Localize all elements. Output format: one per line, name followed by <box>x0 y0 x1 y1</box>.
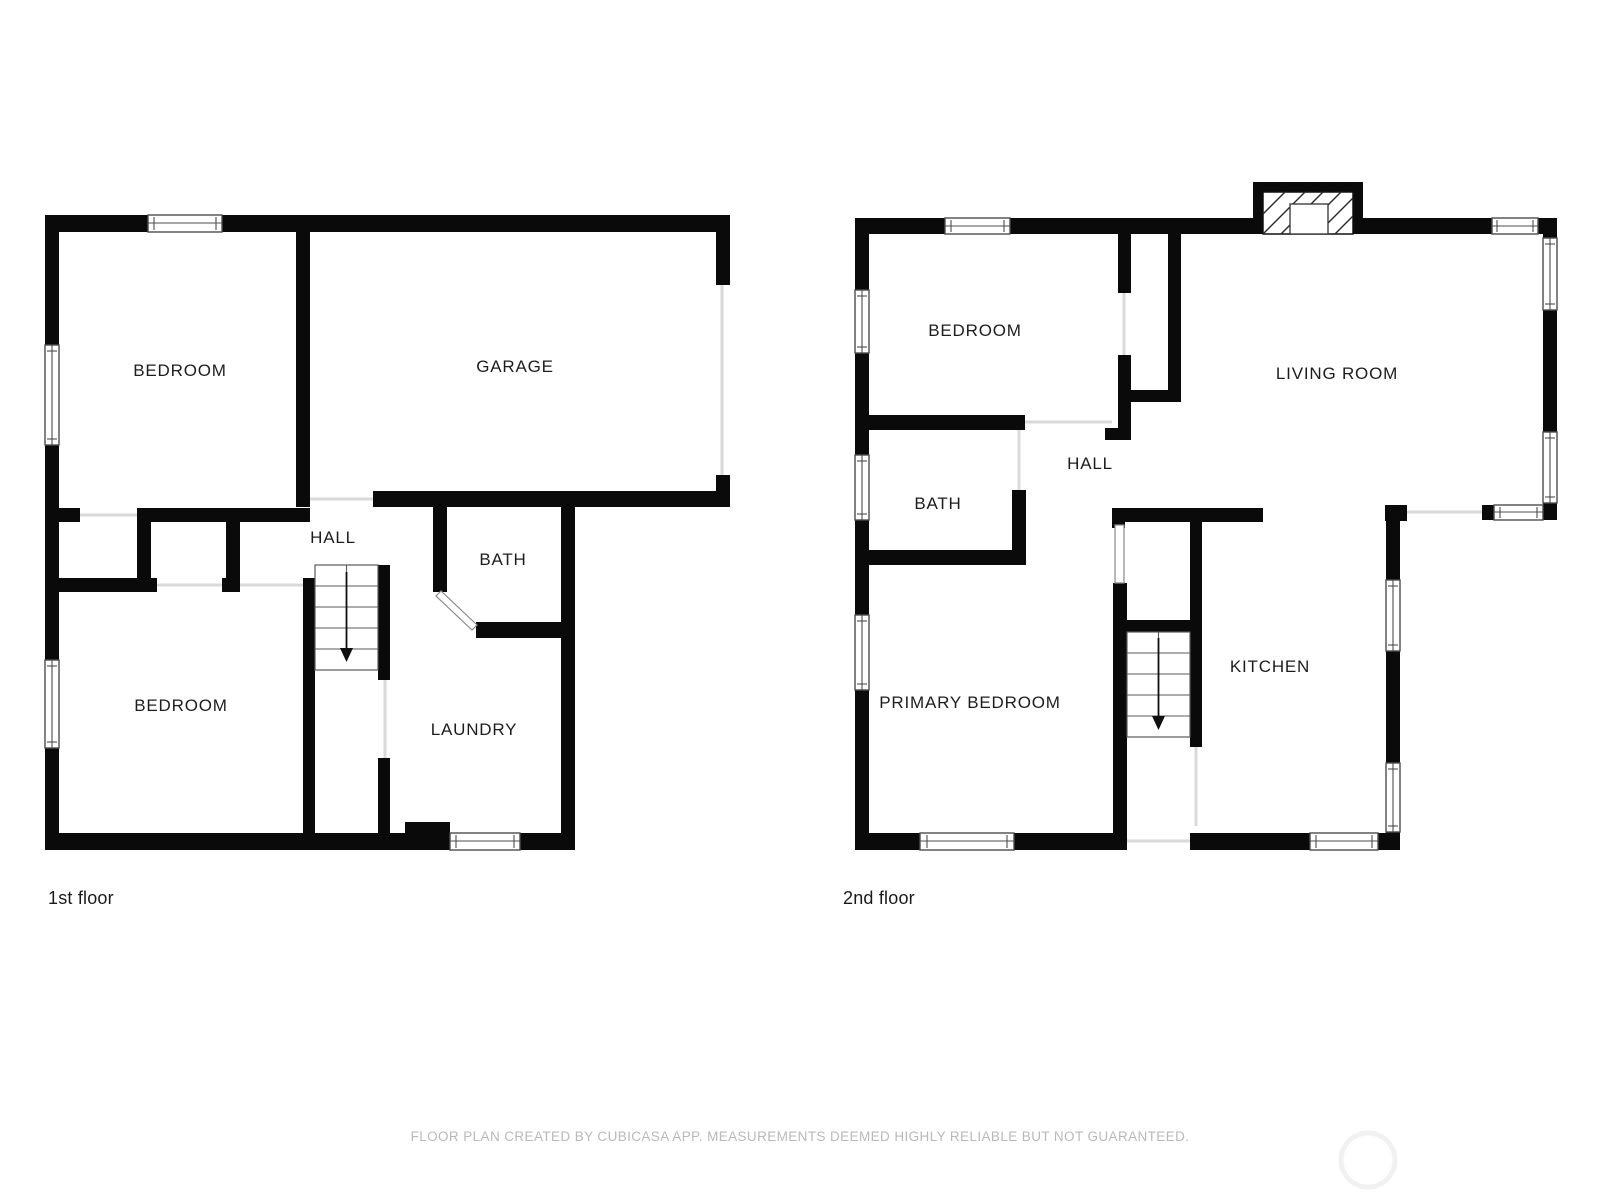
window-symbol <box>1494 505 1543 520</box>
window-symbol <box>1543 238 1557 310</box>
window-symbol <box>1386 763 1400 832</box>
room-label-bedroom-2nd: BEDROOM <box>928 321 1021 340</box>
window-symbol <box>1386 580 1400 651</box>
chimney <box>1253 182 1363 234</box>
window-symbol <box>945 218 1010 234</box>
room-label-bedroom-bottom: BEDROOM <box>134 696 227 715</box>
room-label-living-room: LIVING ROOM <box>1276 364 1398 383</box>
room-label-kitchen: KITCHEN <box>1230 657 1310 676</box>
window-symbol <box>855 615 869 690</box>
room-label-bath-2nd: BATH <box>914 494 961 513</box>
staircase-1st <box>315 565 378 670</box>
room-label-hall-1st: HALL <box>310 528 356 547</box>
window-symbol <box>148 215 222 232</box>
primary-bedroom-door-leaf <box>1115 525 1124 583</box>
windows-2nd <box>855 218 1557 850</box>
walls-1st <box>45 215 730 850</box>
floor-plan-1st: BEDROOM GARAGE HALL BATH BEDROOM LAUNDRY… <box>45 215 730 908</box>
windows-1st <box>45 215 520 850</box>
window-symbol <box>920 833 1014 850</box>
window-symbol <box>855 290 869 353</box>
door-openings-2nd <box>1019 293 1482 841</box>
room-label-hall-2nd: HALL <box>1067 454 1113 473</box>
room-label-bedroom-top: BEDROOM <box>133 361 226 380</box>
room-label-bath-1st: BATH <box>479 550 526 569</box>
floor2-caption: 2nd floor <box>843 888 915 908</box>
watermark-circle <box>1341 1133 1395 1187</box>
bath-door-leaf <box>436 591 477 630</box>
floor-plan-2nd: BEDROOM LIVING ROOM HALL BATH PRIMARY BE… <box>843 182 1557 908</box>
room-label-primary-bedroom: PRIMARY BEDROOM <box>879 693 1060 712</box>
window-symbol <box>45 345 59 445</box>
window-symbol <box>450 833 520 850</box>
laundry-door-threshold <box>405 822 450 835</box>
room-label-garage: GARAGE <box>476 357 554 376</box>
floor-plan-drawing: BEDROOM GARAGE HALL BATH BEDROOM LAUNDRY… <box>0 0 1600 1200</box>
room-label-laundry: LAUNDRY <box>431 720 518 739</box>
floor-plan-page: BEDROOM GARAGE HALL BATH BEDROOM LAUNDRY… <box>0 0 1600 1200</box>
floor1-caption: 1st floor <box>48 888 114 908</box>
window-symbol <box>855 455 869 520</box>
window-symbol <box>1543 432 1557 503</box>
window-symbol <box>1310 833 1378 850</box>
walls-2nd <box>855 218 1557 850</box>
window-symbol <box>1492 218 1538 234</box>
staircase-2nd <box>1127 632 1190 737</box>
chimney-flue <box>1290 204 1328 234</box>
window-symbol <box>45 660 59 748</box>
footer-disclaimer: FLOOR PLAN CREATED BY CUBICASA APP. MEAS… <box>411 1129 1190 1144</box>
